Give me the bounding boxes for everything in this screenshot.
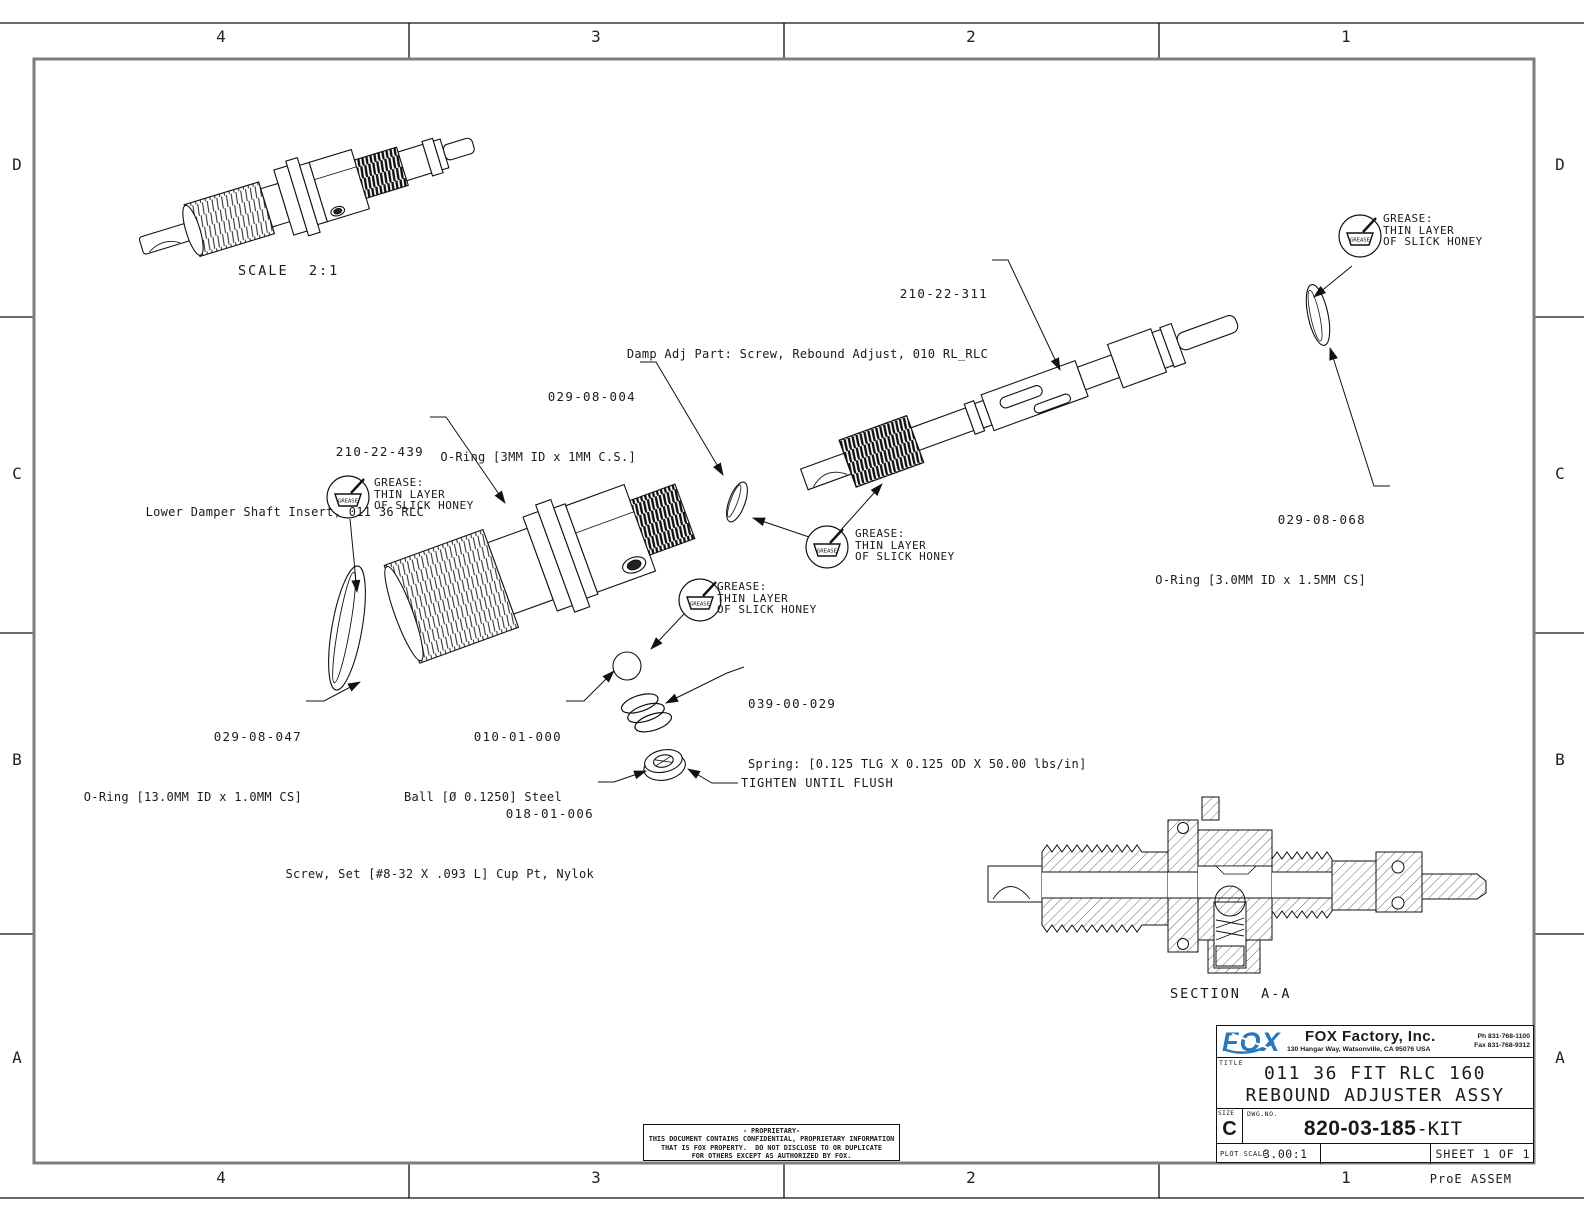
grease-note-line: OF SLICK HONEY: [855, 550, 955, 563]
callout-oring-small: 029-08-004 O-Ring [3MM ID x 1MM C.S.]: [440, 351, 636, 483]
grease-symbol: GREASE: [679, 579, 721, 621]
company-address: 130 Hangar Way, Watsonville, CA 95076 US…: [1287, 1046, 1430, 1053]
proprietary-line: THAT IS FOX PROPERTY. DO NOT DISCLOSE TO…: [661, 1144, 882, 1152]
grease-symbol: GREASE: [1339, 215, 1381, 257]
proprietary-line: THIS DOCUMENT CONTAINS CONFIDENTIAL, PRO…: [649, 1135, 895, 1143]
zone-left-c: C: [4, 464, 30, 483]
title-block-title-row: TITLE 011 36 FIT RLC 160 REBOUND ADJUSTE…: [1217, 1058, 1533, 1109]
proprietary-line: - PROPRIETARY-: [743, 1127, 800, 1135]
part-desc: O-Ring [13.0MM ID x 1.0MM CS]: [84, 790, 302, 804]
part-desc: O-Ring [3MM ID x 1MM C.S.]: [440, 450, 636, 464]
ball-drawing: [613, 652, 641, 680]
footer-note: ProE ASSEM: [1430, 1172, 1512, 1186]
part-desc: O-Ring [3.0MM ID x 1.5MM CS]: [1155, 573, 1366, 587]
part-number: 210-22-311: [627, 286, 988, 301]
section-label: SECTION A-A: [1170, 986, 1292, 1002]
zone-bottom-2: 2: [958, 1168, 984, 1187]
zone-left-a: A: [4, 1048, 30, 1067]
grease-note: GREASE:THIN LAYEROF SLICK HONEY: [855, 528, 955, 563]
set-screw-drawing: [641, 746, 688, 784]
tighten-note: TIGHTEN UNTIL FLUSH: [741, 776, 893, 790]
size-cell: SIZE C: [1217, 1109, 1243, 1143]
assembled-view: [130, 107, 485, 283]
callout-oring-right: 029-08-068 O-Ring [3.0MM ID x 1.5MM CS]: [1155, 474, 1366, 606]
drawing-sheet: GREASE GREASE GREASE GREASE 4 3 2 1 4 3 …: [0, 0, 1584, 1224]
drawing-title-line1: 011 36 FIT RLC 160: [1217, 1063, 1533, 1084]
zone-bottom-4: 4: [208, 1168, 234, 1187]
callout-spring: 039-00-029 Spring: [0.125 TLG X 0.125 OD…: [748, 658, 1087, 790]
part-number: 029-08-004: [440, 389, 636, 404]
part-number: 029-08-047: [84, 729, 302, 744]
proprietary-notice: - PROPRIETARY-THIS DOCUMENT CONTAINS CON…: [643, 1124, 900, 1161]
part-desc: Spring: [0.125 TLG X 0.125 OD X 50.00 lb…: [748, 757, 1087, 771]
plot-scale-cell: PLOT SCALE 3.00:1: [1217, 1144, 1321, 1164]
grease-icon-text: GREASE: [690, 602, 710, 608]
grease-note: GREASE:THIN LAYEROF SLICK HONEY: [717, 581, 817, 616]
callout-shaft-insert: 210-22-439 Lower Damper Shaft Insert, 01…: [146, 406, 424, 538]
zone-left-b: B: [4, 750, 30, 769]
part-desc: Screw, Set [#8-32 X .093 L] Cup Pt, Nylo…: [285, 867, 594, 881]
section-view: [988, 797, 1486, 973]
plot-scale-value: 3.00:1: [1263, 1147, 1308, 1161]
part-number: 039-00-029: [748, 696, 1087, 711]
grease-icon-text: GREASE: [1350, 238, 1370, 244]
proprietary-line: FOR OTHERS EXCEPT AS AUTHORIZED BY FOX.: [692, 1152, 852, 1160]
drawing-title-line2: REBOUND ADJUSTER ASSY: [1217, 1085, 1533, 1106]
part-number: 010-01-000: [404, 729, 562, 744]
oring-large-drawing: [321, 563, 372, 692]
company-phones: Ph 831-768-1100Fax 831-768-9312: [1474, 1032, 1530, 1050]
callout-oring-large: 029-08-047 O-Ring [13.0MM ID x 1.0MM CS]: [84, 691, 302, 823]
fax: Fax 831-768-9312: [1474, 1042, 1530, 1049]
title-block-footer-row: PLOT SCALE 3.00:1 SHEET 1 OF 1: [1217, 1144, 1533, 1164]
callout-damp-adj-screw: 210-22-311 Damp Adj Part: Screw, Rebound…: [627, 248, 988, 380]
scale-label: SCALE 2:1: [238, 263, 339, 279]
grease-note-line: OF SLICK HONEY: [374, 499, 474, 512]
part-number: 029-08-068: [1155, 512, 1366, 527]
sheet-value: SHEET 1 OF 1: [1431, 1147, 1535, 1161]
zone-top-3: 3: [583, 27, 609, 46]
size-value: C: [1217, 1118, 1242, 1141]
zone-left-d: D: [4, 155, 30, 174]
zone-right-b: B: [1547, 750, 1573, 769]
zone-right-c: C: [1547, 464, 1573, 483]
plot-scale-label: PLOT SCALE: [1220, 1150, 1267, 1158]
dwg-no-bold: 820-03-185: [1304, 1117, 1416, 1140]
zone-right-d: D: [1547, 155, 1573, 174]
part-desc: Damp Adj Part: Screw, Rebound Adjust, 01…: [627, 347, 988, 361]
dwg-no-value: 820-03-185-KIT: [1243, 1117, 1523, 1141]
grease-symbol: GREASE: [806, 526, 848, 568]
title-block-number-row: SIZE C DWG.NO. 820-03-185-KIT: [1217, 1109, 1533, 1144]
empty-cell: [1321, 1144, 1431, 1164]
oring-right-drawing: [1302, 283, 1334, 348]
grease-note-line: OF SLICK HONEY: [1383, 235, 1483, 248]
title-block-company-row: FOX FOX Factory, Inc. 130 Hangar Way, Wa…: [1217, 1026, 1533, 1058]
phone: Ph 831-768-1100: [1477, 1033, 1530, 1040]
zone-top-4: 4: [208, 27, 234, 46]
zone-right-a: A: [1547, 1048, 1573, 1067]
dwg-no-suffix: -KIT: [1416, 1118, 1462, 1140]
oring-small-drawing: [722, 480, 751, 525]
company-name: FOX Factory, Inc.: [1305, 1028, 1436, 1045]
size-label: SIZE: [1218, 1110, 1234, 1117]
part-number: 018-01-006: [285, 806, 594, 821]
part-number: 210-22-439: [146, 444, 424, 459]
callout-set-screw: 018-01-006 Screw, Set [#8-32 X .093 L] C…: [285, 768, 594, 900]
grease-note: GREASE:THIN LAYEROF SLICK HONEY: [374, 477, 474, 512]
zone-bottom-3: 3: [583, 1168, 609, 1187]
sheet-cell: SHEET 1 OF 1: [1431, 1144, 1535, 1164]
title-block: FOX FOX Factory, Inc. 130 Hangar Way, Wa…: [1216, 1025, 1534, 1163]
fox-logo: FOX: [1220, 1028, 1298, 1059]
zone-top-2: 2: [958, 27, 984, 46]
zone-top-1: 1: [1333, 27, 1359, 46]
zone-bottom-1: 1: [1333, 1168, 1359, 1187]
grease-icon-text: GREASE: [817, 549, 837, 555]
grease-note-line: OF SLICK HONEY: [717, 603, 817, 616]
grease-note: GREASE:THIN LAYEROF SLICK HONEY: [1383, 213, 1483, 248]
spring-drawing: [619, 688, 674, 738]
